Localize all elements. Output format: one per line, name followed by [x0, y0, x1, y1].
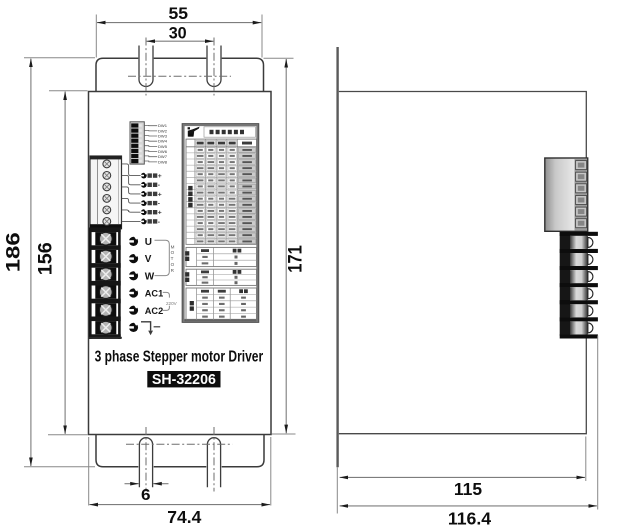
svg-text:T: T — [171, 256, 174, 261]
svg-text:U: U — [145, 237, 152, 248]
svg-text:-: - — [158, 182, 160, 189]
svg-text:6: 6 — [141, 487, 151, 504]
svg-text:186: 186 — [4, 232, 25, 272]
svg-text:DW1: DW1 — [158, 124, 167, 128]
svg-text:DW6: DW6 — [158, 150, 167, 154]
svg-text:171: 171 — [286, 245, 307, 273]
svg-text:AC1: AC1 — [145, 289, 163, 299]
svg-text:116.4: 116.4 — [448, 508, 492, 528]
svg-text:M: M — [171, 244, 175, 249]
svg-text:DW4: DW4 — [158, 140, 167, 144]
svg-text:O: O — [171, 250, 175, 255]
svg-text:+: + — [158, 210, 162, 217]
svg-text:SH-32206: SH-32206 — [152, 371, 216, 388]
svg-text:3 phase Stepper motor Driver: 3 phase Stepper motor Driver — [95, 349, 264, 366]
svg-text:AC2: AC2 — [145, 306, 163, 316]
svg-text:30: 30 — [169, 25, 187, 43]
svg-text:-: - — [158, 201, 160, 208]
svg-text:DW3: DW3 — [158, 135, 167, 139]
svg-text:115: 115 — [454, 479, 482, 499]
svg-text:156: 156 — [36, 242, 57, 275]
svg-text:W: W — [145, 271, 155, 282]
svg-text:+: + — [158, 173, 162, 180]
svg-text:+: + — [158, 191, 162, 198]
svg-text:DW7: DW7 — [158, 155, 167, 159]
svg-text:220V: 220V — [166, 301, 178, 306]
svg-text:V: V — [145, 254, 152, 265]
svg-text:74.4: 74.4 — [167, 507, 201, 527]
svg-text:DW8: DW8 — [158, 160, 167, 164]
svg-text:55: 55 — [169, 5, 189, 23]
svg-text:DW2: DW2 — [158, 129, 167, 133]
svg-text:O: O — [171, 262, 175, 267]
svg-text:-: - — [158, 219, 160, 226]
svg-text:DW5: DW5 — [158, 145, 167, 149]
